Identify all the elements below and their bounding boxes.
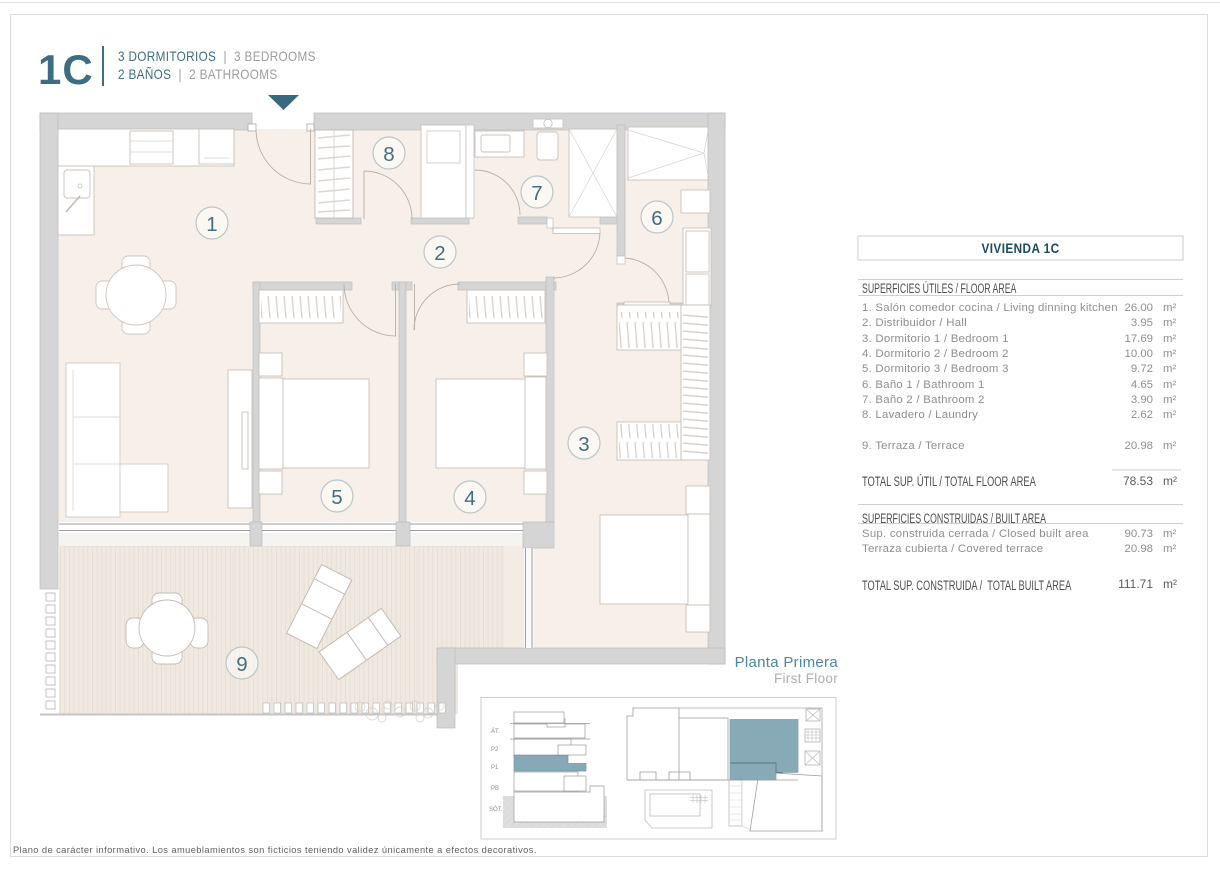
svg-text:6: 6 — [651, 207, 662, 230]
svg-text:SÓT.: SÓT. — [489, 806, 503, 813]
svg-text:PB: PB — [491, 786, 499, 792]
svg-text:3: 3 — [578, 433, 589, 456]
svg-text:5: 5 — [331, 486, 342, 509]
svg-text:P1: P1 — [491, 765, 499, 771]
svg-text:8: 8 — [383, 143, 394, 166]
svg-text:4: 4 — [464, 487, 475, 510]
svg-text:2: 2 — [434, 242, 445, 265]
svg-text:ÁT.: ÁT. — [491, 728, 500, 735]
svg-text:1: 1 — [206, 213, 217, 236]
svg-text:P2: P2 — [491, 747, 499, 753]
svg-text:9: 9 — [236, 653, 247, 676]
svg-text:7: 7 — [531, 182, 542, 205]
